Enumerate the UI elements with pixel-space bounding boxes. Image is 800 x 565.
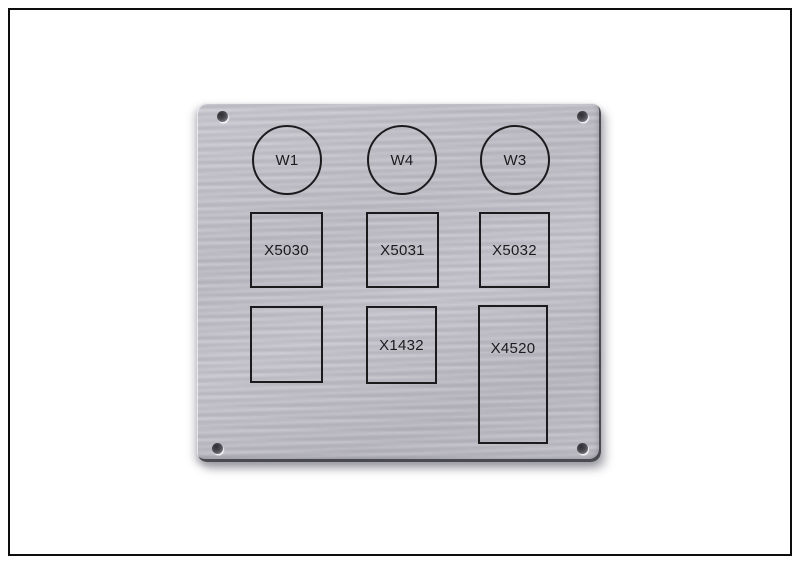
circle-label-w1: W1 [275,152,298,169]
terminal-box-empty [250,306,323,383]
mounting-hole-bottom-left [212,443,223,454]
terminal-label-x5030: X5030 [264,242,309,259]
terminal-box-x5032: X5032 [479,212,550,288]
terminal-box-x5030: X5030 [250,212,323,288]
terminal-box-x1432: X1432 [366,306,437,384]
mounting-hole-top-right [577,111,588,122]
circle-label-w3: W3 [503,152,526,169]
circle-cutout-w3: W3 [480,125,550,195]
terminal-label-x4520: X4520 [491,340,536,357]
terminal-label-x5032: X5032 [492,242,537,259]
circle-cutout-w4: W4 [367,125,437,195]
photo-background: W1 W4 W3 X5030 X5031 X5032 X1432 X4520 [0,0,800,565]
engraved-label-plate: W1 W4 W3 X5030 X5031 X5032 X1432 X4520 [197,103,601,462]
circle-label-w4: W4 [390,152,413,169]
mounting-hole-top-left [217,111,228,122]
terminal-label-x5031: X5031 [380,242,425,259]
mounting-hole-bottom-right [577,443,588,454]
circle-cutout-w1: W1 [252,125,322,195]
terminal-box-x5031: X5031 [366,212,439,288]
terminal-label-x1432: X1432 [379,337,424,354]
terminal-box-x4520: X4520 [478,305,548,444]
